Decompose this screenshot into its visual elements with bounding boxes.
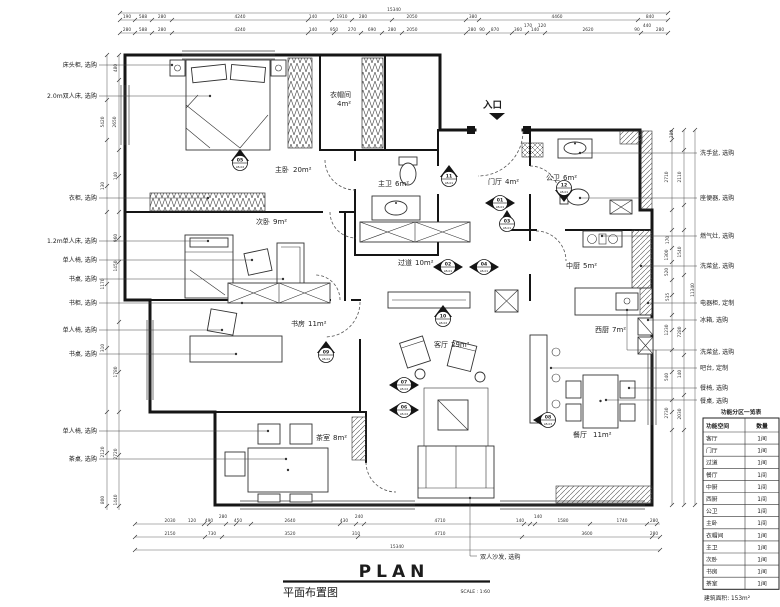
wall-hatch (641, 131, 652, 209)
legend-row-name: 中厨 (706, 483, 718, 491)
wardrobe (288, 58, 312, 148)
svg-text:05: 05 (237, 157, 243, 163)
label-single-chair-2: 单人椅, 选购 (63, 326, 97, 334)
svg-text:LB-01: LB-01 (560, 190, 568, 194)
room-label-kitchen: 中厨5m² (566, 261, 597, 270)
dim-l-8: 310 (100, 344, 106, 352)
dim-b1-12: 1740 (617, 518, 628, 524)
entrance-label: 入口 (482, 100, 502, 111)
legend-row-qty: 1间 (757, 483, 767, 491)
label-double-sofa: 双人沙发, 选购 (480, 553, 520, 561)
dim-t2-18: 90 (634, 27, 640, 33)
legend-row-qty: 1间 (757, 447, 767, 455)
dim-t2-13: 360 (514, 27, 522, 33)
elevation-marker-06: 06LB-02 (389, 403, 419, 418)
entry-column (467, 126, 475, 134)
dim-l-11: 2720 (113, 448, 119, 459)
dim-r-2: 2110 (677, 171, 683, 182)
dim-r-10: 7280 (677, 326, 683, 337)
furniture-master-bedroom (170, 58, 312, 150)
room-label-tea-room: 茶室8m² (316, 433, 347, 442)
dim-b1-0: 2030 (165, 518, 176, 524)
svg-text:LB-02: LB-02 (322, 357, 330, 361)
legend-row-name: 过道 (706, 459, 718, 467)
dim-t2-2: 280 (158, 27, 166, 33)
label-single-chair-3: 单人椅, 选购 (63, 427, 97, 435)
entrance: 入口 (482, 100, 505, 120)
dimension-top: 15340 190 588 280 4240 140 1910 280 2050… (118, 7, 670, 35)
title-block: PLAN 平面布置图 SCALE : 1:60 (283, 562, 490, 599)
dim-l-12: 800 (100, 496, 106, 504)
legend-row-name: 西厨 (706, 496, 718, 503)
room-label-foyer: 门厅4m² (488, 177, 519, 186)
label-single-bed: 1.2m单人床, 选购 (47, 237, 97, 245)
label-tea-table: 茶桌, 选购 (69, 455, 97, 463)
dim-l-6: 1450 (113, 260, 119, 271)
legend-row-qty: 1间 (757, 519, 767, 527)
dim-b1-5: 2640 (285, 518, 296, 524)
dim-l-1: 5420 (100, 116, 106, 127)
dim-r-9: 1230 (664, 324, 670, 335)
dim-b2-1: 730 (208, 531, 216, 537)
dim-b1-11: 1580 (558, 518, 569, 524)
legend-table-title: 功能分区一览表 (721, 408, 762, 416)
legend-row-name: 衣帽间 (706, 531, 724, 539)
svg-text:LB-02: LB-02 (236, 165, 244, 169)
furniture-cloakroom (362, 58, 383, 148)
dim-t2-11: 90 (479, 27, 485, 33)
room-label-cloakroom-area: 4m² (337, 100, 351, 108)
legend-row-qty: 1间 (757, 580, 767, 588)
legend-row-qty: 1间 (757, 543, 767, 551)
room-label-study: 书房11m² (291, 319, 327, 328)
plan-scale: SCALE : 1:60 (460, 589, 490, 595)
room-label-living-room: 客厅29m² (434, 340, 470, 349)
legend-header-space: 功能空间 (706, 422, 729, 430)
dim-b2-2: 3520 (285, 531, 296, 537)
dim-b1-6: 430 (340, 518, 348, 524)
room-label-master-bedroom: 主卧20m² (275, 165, 312, 174)
dim-b1-1: 120 (188, 518, 196, 524)
dim-t1-10: 840 (646, 14, 654, 20)
dim-t2-1: 588 (139, 27, 147, 33)
dim-r-1: 2710 (664, 171, 670, 182)
svg-text:LB-01: LB-01 (445, 181, 453, 185)
room-label-west-kitchen: 西厨7m² (595, 326, 626, 334)
label-gas-stove: 燃气灶, 选购 (700, 232, 734, 240)
furniture-living (400, 290, 518, 498)
dim-t1-2: 280 (158, 14, 166, 20)
legend-row-qty: 1间 (757, 495, 767, 503)
dim-r-7: 535 (665, 293, 671, 301)
label-toilet: 座便器, 选购 (700, 194, 734, 202)
plan-subtitle: 平面布置图 (283, 586, 338, 599)
svg-text:10: 10 (440, 313, 446, 319)
elevation-marker-11: 11LB-01 (440, 165, 458, 187)
room-label-master-bath: 主卫6m² (378, 179, 409, 188)
legend-table: 功能分区一览表 功能空间 数量 客厅1间 门厅1间 过道1间 餐厅1间 中厨1间… (703, 408, 779, 602)
wardrobe (362, 58, 383, 148)
dim-b1-13: 280 (650, 518, 658, 524)
legend-header-qty: 数量 (756, 422, 768, 430)
label-bar-counter: 吧台, 定制 (700, 364, 728, 372)
legend-row-name: 主卫 (706, 543, 718, 551)
cabinet-hatch (556, 486, 652, 503)
legend-row-qty: 1间 (757, 507, 767, 515)
dim-t1-4: 140 (309, 14, 317, 20)
dim-r-5: 1540 (677, 246, 683, 257)
dim-t2-5: 950 (330, 27, 338, 33)
dim-l-13: 1440 (113, 494, 119, 505)
label-double-bed: 2.0m双人床, 选购 (47, 92, 97, 100)
elevation-marker-05: 05LB-02 (231, 149, 249, 171)
label-bookcase: 书柜, 选购 (69, 299, 97, 307)
dim-top-total: 15340 (387, 7, 401, 13)
dim-b2-5: 3600 (582, 531, 593, 537)
dim-t1-8: 380 (469, 14, 477, 20)
dim-t2-16: 120 (538, 23, 546, 29)
counter-hatch (640, 288, 652, 315)
legend-row-name: 次卧 (706, 556, 718, 564)
dim-b1-8: 4710 (435, 518, 446, 524)
legend-row-name: 主卧 (706, 519, 718, 527)
wall-hatch (620, 131, 642, 144)
legend-row-qty: 1间 (757, 459, 767, 467)
elevation-marker-01: 01LB-01 (485, 196, 515, 211)
dim-r-12: 140 (677, 370, 683, 378)
dim-b2-4: 4710 (435, 531, 446, 537)
svg-text:07: 07 (401, 379, 407, 385)
svg-text:LB-01: LB-01 (496, 205, 504, 209)
furniture-bar (530, 335, 560, 423)
legend-row-qty: 1间 (757, 471, 767, 479)
room-label-second-bedroom: 次卧9m² (256, 217, 287, 226)
dim-t2-19: 440 (643, 23, 651, 29)
svg-text:LB-02: LB-02 (439, 321, 447, 325)
dim-l-9: 1780 (113, 366, 119, 377)
furniture-tea-room (225, 424, 328, 502)
legend-row-qty: 1间 (757, 435, 767, 443)
dim-r-14: 2030 (677, 408, 683, 419)
dim-b2-0: 2150 (165, 531, 176, 537)
dim-t1-9: 4460 (552, 14, 563, 20)
legend-footer-area: 建筑面积: 153m² (704, 594, 750, 602)
label-appliance-cabinet: 电器柜, 定制 (700, 299, 734, 307)
svg-text:08: 08 (545, 414, 551, 420)
legend-row-name: 餐厅 (706, 471, 718, 479)
svg-text:12: 12 (561, 182, 567, 188)
legend-row-name: 客厅 (706, 435, 718, 443)
svg-text:11: 11 (446, 173, 452, 179)
svg-text:02: 02 (445, 261, 451, 267)
furniture-second-bedroom (150, 193, 304, 298)
dim-bottom-total: 15340 (390, 544, 404, 550)
shoe-cabinet (522, 143, 543, 157)
dim-r-3: 170 (665, 236, 671, 244)
dim-r-6: 520 (664, 268, 670, 276)
dim-t2-10: 280 (468, 27, 476, 33)
svg-text:LB-01: LB-01 (503, 226, 511, 230)
dim-r-0: 280 (669, 130, 675, 138)
label-single-chair-1: 单人椅, 选购 (63, 256, 97, 264)
dim-t1-5: 1910 (337, 14, 348, 20)
furniture-kitchen (575, 230, 653, 354)
dim-t1-6: 280 (359, 14, 367, 20)
svg-text:LB-01: LB-01 (480, 269, 488, 273)
label-desk-1: 书桌, 选购 (69, 275, 97, 283)
dim-t2-6: 270 (348, 27, 356, 33)
dim-r-11: 540 (664, 373, 670, 381)
legend-row-qty: 1间 (757, 568, 767, 576)
legend-row-name: 公卫 (706, 508, 718, 515)
dim-l-4: 130 (100, 182, 106, 190)
dim-l-3: 140 (113, 172, 119, 180)
dim-b1-2: 490 (205, 518, 213, 524)
legend-row-name: 茶室 (706, 580, 718, 588)
dim-r-4: 1300 (664, 249, 670, 260)
room-label-dining-room: 餐厅11m² (573, 430, 612, 439)
elevation-marker-04: 04LB-01 (469, 260, 499, 275)
dim-t2-0: 280 (123, 27, 131, 33)
label-wardrobe: 衣柜, 选购 (69, 194, 97, 202)
dim-t2-8: 280 (388, 27, 396, 33)
legend-row-name: 门厅 (706, 447, 718, 455)
legend-row-qty: 1间 (757, 556, 767, 564)
dim-b2-3: 310 (352, 531, 360, 537)
svg-text:01: 01 (497, 197, 503, 203)
legend-row-name: 书房 (706, 568, 718, 576)
dim-t2-4: 140 (309, 27, 317, 33)
furniture-dining (566, 375, 635, 428)
dimension-left: 480 5420 2650 140 130 960 1450 1170 310 … (100, 53, 121, 510)
dim-t1-7: 2050 (407, 14, 418, 20)
elevation-marker-03: 03LB-01 (500, 210, 515, 232)
dim-b1-4: 450 (234, 518, 242, 524)
svg-text:09: 09 (323, 349, 329, 355)
label-kitchen-sink-1: 洗菜盆, 选购 (700, 262, 734, 270)
dim-b1-9: 140 (516, 518, 524, 524)
wardrobe (150, 193, 265, 211)
dim-b1-3: 280 (219, 514, 227, 520)
svg-text:03: 03 (504, 218, 510, 224)
dim-t2-3: 4240 (235, 27, 246, 33)
room-label-corridor: 过道10m² (398, 258, 434, 267)
dim-t1-0: 190 (123, 14, 131, 20)
floor-plan-canvas: 15340 190 588 280 4240 140 1910 280 2050… (0, 0, 780, 607)
label-fridge: 冰箱, 选购 (700, 316, 728, 324)
dim-t2-20: 280 (656, 27, 664, 33)
label-kitchen-sink-2: 洗菜盆, 选购 (700, 348, 734, 356)
entry-column (523, 126, 531, 134)
dim-t1-3: 4240 (235, 14, 246, 20)
svg-text:04: 04 (481, 261, 487, 267)
dim-t2-9: 2050 (407, 27, 418, 33)
dim-t2-17: 2620 (583, 27, 594, 33)
svg-text:LB-01: LB-01 (444, 269, 452, 273)
svg-text:LB-03: LB-03 (544, 422, 552, 426)
dim-b2-6: 280 (650, 531, 658, 537)
label-dining-table: 餐桌, 选购 (700, 397, 728, 405)
dim-t1-1: 588 (139, 14, 147, 20)
dim-l-2: 2650 (112, 116, 118, 127)
furniture-master-bath (372, 157, 420, 220)
svg-text:LB-02: LB-02 (400, 387, 408, 391)
dim-b1-10: 140 (534, 514, 542, 520)
label-desk-2: 书桌, 选购 (69, 350, 97, 358)
elevation-marker-02: 02LB-01 (433, 260, 463, 275)
dim-r-13: 2730 (664, 407, 670, 418)
dim-l-7: 1170 (100, 278, 106, 289)
label-dining-chair: 餐椅, 选购 (700, 384, 728, 392)
dim-t2-7: 690 (368, 27, 376, 33)
dimension-right: 280 2710 2110 170 1300 1540 520 535 1134… (664, 128, 697, 507)
room-label-cloakroom: 衣帽间 (330, 90, 351, 99)
svg-text:06: 06 (401, 404, 407, 410)
elevation-marker-07: 07LB-02 (389, 378, 419, 393)
label-wash-basin: 洗手盆, 选购 (700, 149, 734, 157)
entrance-arrow-icon (489, 113, 505, 120)
dim-b1-7: 240 (355, 514, 363, 520)
dim-l-10: 2120 (100, 446, 106, 457)
legend-row-qty: 1间 (757, 531, 767, 539)
plan-title: PLAN (359, 562, 430, 582)
pillar-hatch (352, 417, 366, 460)
label-bedside-cabinet: 床头柜, 选购 (63, 61, 97, 69)
dimension-bottom: 2030 120 490 280 450 2640 430 240 4710 1… (133, 514, 662, 552)
dim-r-8: 11340 (690, 283, 696, 297)
dim-t2-12: 870 (491, 27, 499, 33)
elevation-marker-09: 09LB-02 (317, 341, 335, 363)
svg-text:LB-02: LB-02 (400, 412, 408, 416)
